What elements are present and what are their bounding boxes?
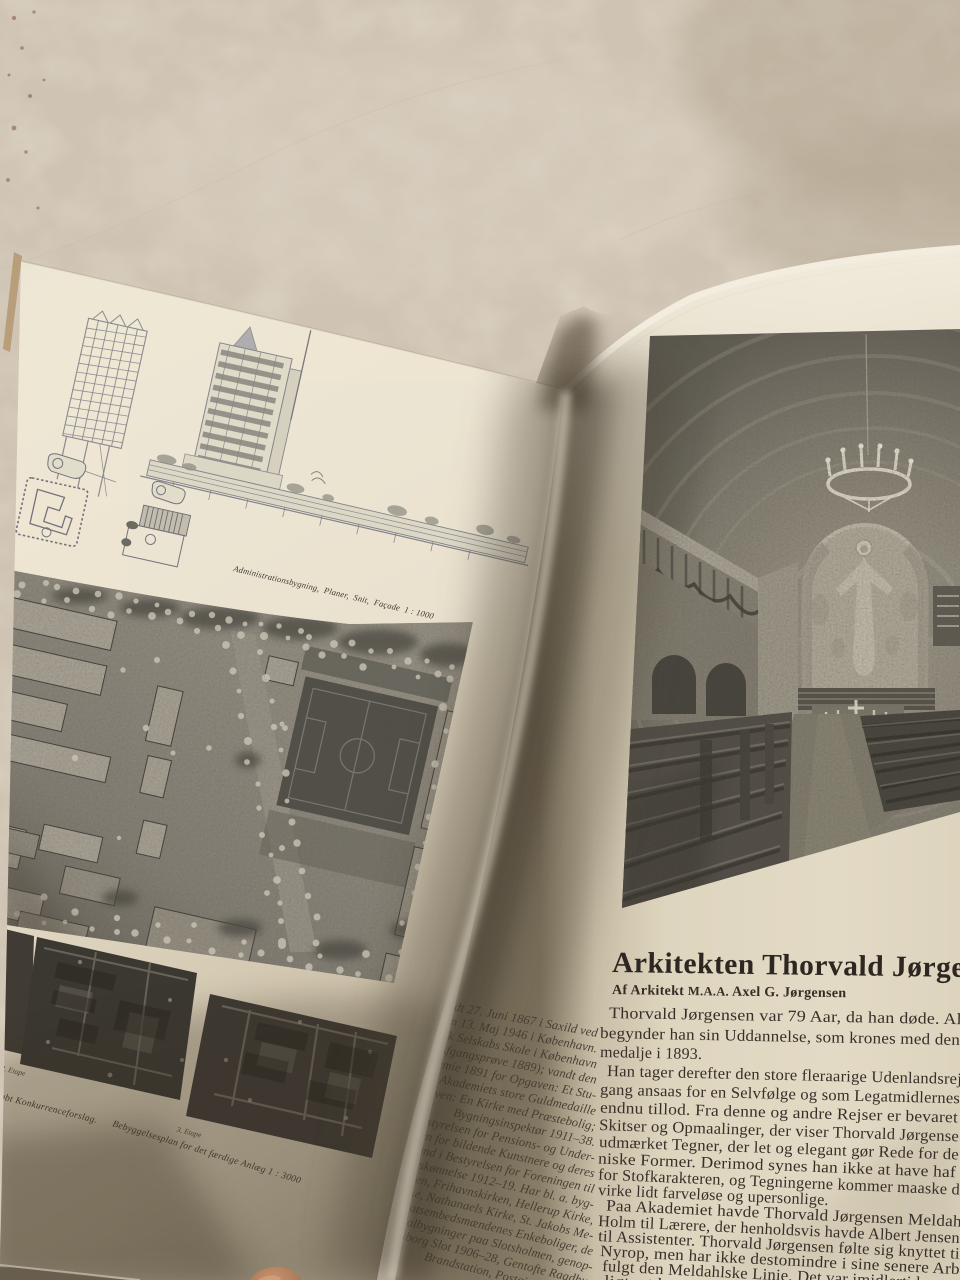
svg-text:medalje i 1893.: medalje i 1893. [600,1044,702,1063]
svg-text:Arkitekten Thorvald Jørgensen: Arkitekten Thorvald Jørgensen [612,947,960,985]
